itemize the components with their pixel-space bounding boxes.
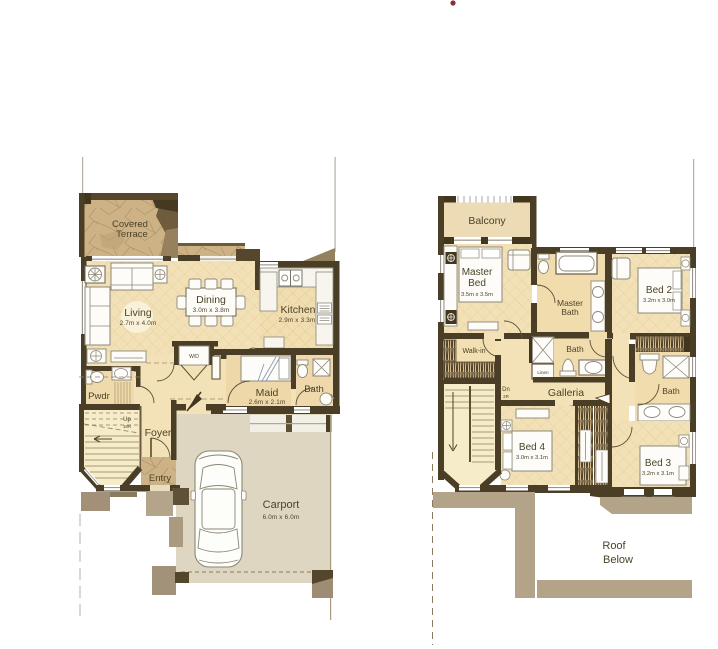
svg-text:Bed 3: Bed 3 — [645, 458, 672, 469]
svg-text:2.9m x 3.3m: 2.9m x 3.3m — [279, 317, 316, 324]
svg-text:3.0m x 3.1m: 3.0m x 3.1m — [516, 455, 548, 461]
svg-text:Pwdr: Pwdr — [88, 391, 110, 402]
svg-text:Galleria: Galleria — [548, 387, 584, 399]
svg-text:W/D: W/D — [189, 354, 199, 360]
svg-text:6.0m x 6.0m: 6.0m x 6.0m — [263, 514, 300, 521]
svg-text:Maid: Maid — [256, 387, 279, 399]
svg-text:Bath: Bath — [662, 386, 680, 396]
svg-text:3.5m x 3.5m: 3.5m x 3.5m — [461, 292, 493, 298]
svg-text:Kitchen: Kitchen — [280, 304, 315, 316]
svg-text:2R: 2R — [503, 394, 510, 399]
svg-text:Foyer: Foyer — [145, 427, 172, 439]
svg-text:2.6m x 2.1m: 2.6m x 2.1m — [249, 399, 286, 406]
svg-text:Linen: Linen — [537, 370, 549, 375]
svg-text:Bed: Bed — [468, 278, 486, 289]
svg-text:3.2m x 3.0m: 3.2m x 3.0m — [643, 298, 675, 304]
svg-text:3.2m x 3.1m: 3.2m x 3.1m — [642, 471, 674, 477]
svg-text:Dn: Dn — [502, 387, 510, 393]
svg-text:Walk-in: Walk-in — [462, 348, 485, 355]
svg-text:2.7m x 4.0m: 2.7m x 4.0m — [120, 320, 157, 327]
svg-text:Bath: Bath — [561, 307, 579, 317]
svg-text:Entry: Entry — [149, 473, 171, 484]
svg-text:Dining: Dining — [196, 294, 226, 306]
svg-text:Balcony: Balcony — [468, 215, 506, 227]
svg-text:Bath: Bath — [304, 384, 324, 395]
svg-text:Living: Living — [124, 307, 152, 319]
svg-text:3.0m x 3.8m: 3.0m x 3.8m — [193, 307, 230, 314]
svg-text:Carport: Carport — [263, 499, 300, 511]
svg-text:18R: 18R — [123, 424, 132, 429]
svg-text:Master: Master — [462, 267, 493, 278]
svg-text:Below: Below — [603, 554, 633, 566]
svg-text:Bed 2: Bed 2 — [646, 285, 673, 296]
svg-text:Terrace: Terrace — [116, 229, 148, 240]
svg-text:Up: Up — [123, 417, 131, 423]
svg-text:Roof: Roof — [602, 540, 626, 552]
svg-text:Bed 4: Bed 4 — [519, 442, 546, 453]
svg-text:Bath: Bath — [566, 344, 584, 354]
